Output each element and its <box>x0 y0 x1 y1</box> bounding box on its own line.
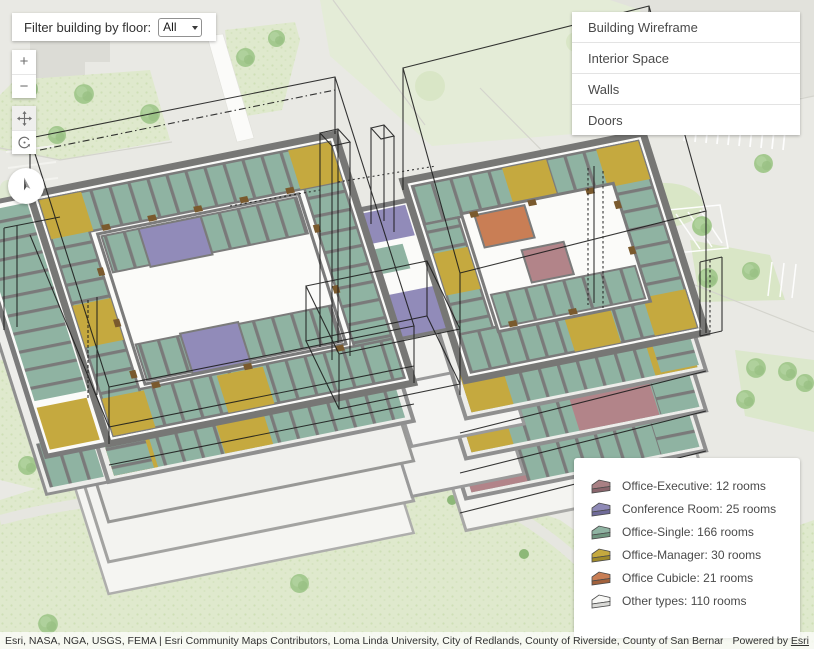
floor-filter-panel: Filter building by floor: All <box>12 13 216 41</box>
compass-button[interactable] <box>8 168 44 204</box>
navigation-toggle <box>12 106 36 154</box>
layer-item-walls[interactable]: Walls <box>572 73 800 104</box>
legend-panel: Office-Executive: 12 rooms Conference Ro… <box>574 458 800 638</box>
layer-item-building-wireframe[interactable]: Building Wireframe <box>572 12 800 42</box>
room-swatch-icon <box>590 523 612 540</box>
layer-list-panel: Building Wireframe Interior Space Walls … <box>572 12 800 135</box>
zoom-out-button[interactable]: − <box>12 74 36 98</box>
rotate-button[interactable] <box>12 130 36 154</box>
zoom-control: + − <box>12 50 36 98</box>
room-swatch-icon <box>590 500 612 517</box>
legend-item: Other types: 110 rooms <box>574 589 800 612</box>
compass-needle-icon <box>15 173 37 199</box>
legend-label: Office-Manager: 30 rooms <box>622 548 761 562</box>
legend-label: Conference Room: 25 rooms <box>622 502 776 516</box>
legend-item: Conference Room: 25 rooms <box>574 497 800 520</box>
legend-item: Office-Manager: 30 rooms <box>574 543 800 566</box>
legend-label: Office-Executive: 12 rooms <box>622 479 766 493</box>
legend-item: Office Cubicle: 21 rooms <box>574 566 800 589</box>
legend-label: Office Cubicle: 21 rooms <box>622 571 753 585</box>
powered-by: Powered by Esri <box>733 635 809 647</box>
room-swatch-icon <box>590 546 612 563</box>
app-window: Filter building by floor: All + − <box>0 0 814 649</box>
room-swatch-icon <box>590 592 612 609</box>
legend-label: Office-Single: 166 rooms <box>622 525 754 539</box>
legend-label: Other types: 110 rooms <box>622 594 747 608</box>
layer-item-doors[interactable]: Doors <box>572 104 800 135</box>
rotate-icon <box>17 135 32 150</box>
layer-item-interior-space[interactable]: Interior Space <box>572 42 800 73</box>
floor-filter-select[interactable]: All <box>158 18 202 37</box>
floor-filter-label: Filter building by floor: <box>24 20 151 35</box>
esri-link[interactable]: Esri <box>791 635 809 647</box>
pan-move-icon <box>17 111 32 126</box>
attribution-bar: Esri, NASA, NGA, USGS, FEMA | Esri Commu… <box>0 632 814 649</box>
room-swatch-icon <box>590 569 612 586</box>
attribution-sources: Esri, NASA, NGA, USGS, FEMA | Esri Commu… <box>5 635 723 647</box>
powered-by-text: Powered by <box>733 635 791 647</box>
zoom-in-button[interactable]: + <box>12 50 36 74</box>
legend-item: Office-Single: 166 rooms <box>574 520 800 543</box>
pan-button[interactable] <box>12 106 36 130</box>
legend-item: Office-Executive: 12 rooms <box>574 474 800 497</box>
room-swatch-icon <box>590 477 612 494</box>
